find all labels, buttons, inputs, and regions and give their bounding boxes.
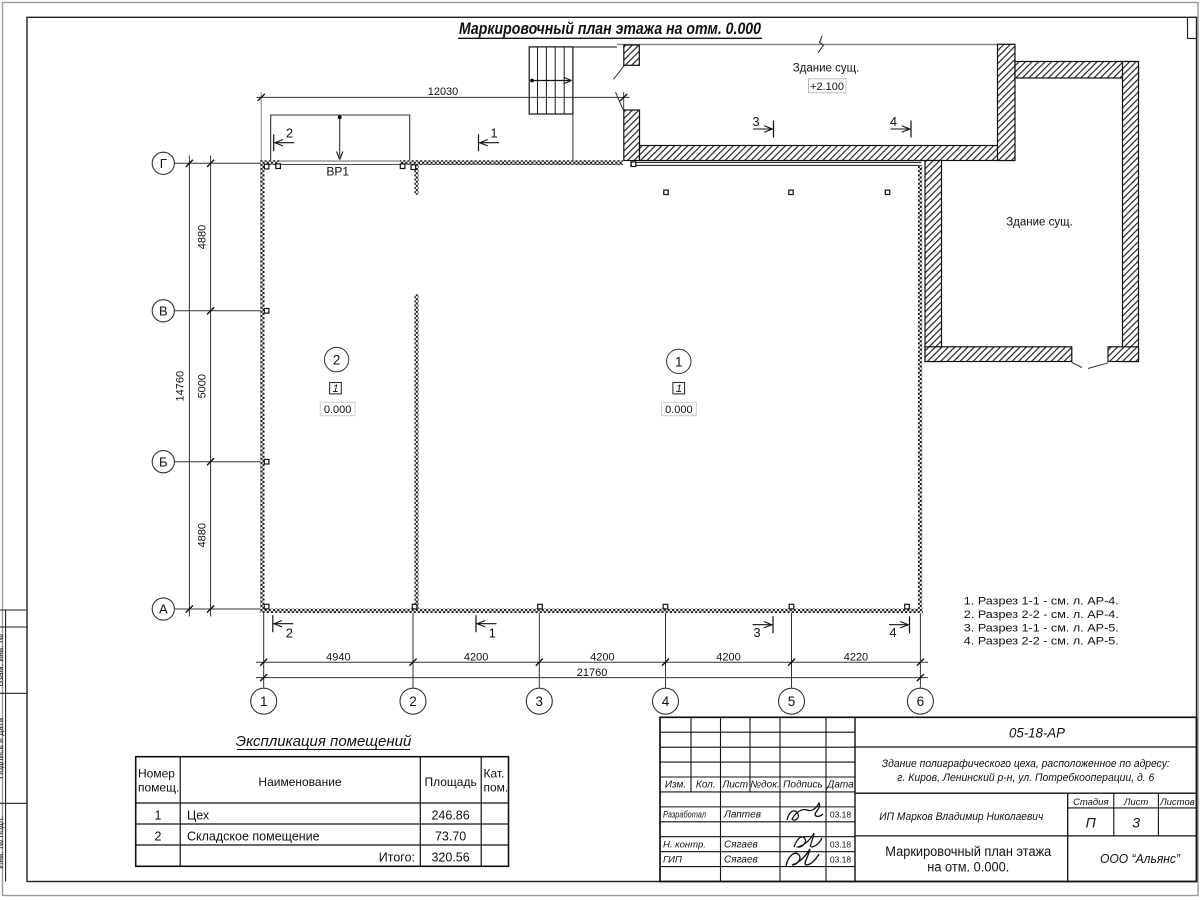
svg-text:Сягаев: Сягаев xyxy=(724,839,758,850)
svg-text:14760: 14760 xyxy=(174,371,186,402)
svg-text:Кат.: Кат. xyxy=(484,767,505,781)
svg-text:Площадь: Площадь xyxy=(424,775,476,789)
svg-text:помещ.: помещ. xyxy=(138,781,179,795)
svg-text:05-18-АР: 05-18-АР xyxy=(1009,725,1066,741)
svg-text:В: В xyxy=(159,303,168,318)
svg-text:4200: 4200 xyxy=(590,652,614,664)
svg-text:Дата: Дата xyxy=(826,780,854,791)
svg-text:4: 4 xyxy=(889,625,896,640)
svg-text:пом.: пом. xyxy=(484,781,509,795)
svg-text:Подпись: Подпись xyxy=(783,780,823,791)
svg-text:Инв. № подл.: Инв. № подл. xyxy=(0,816,5,869)
svg-text:0.000: 0.000 xyxy=(324,404,352,416)
svg-text:1: 1 xyxy=(490,126,497,141)
svg-text:Цех: Цех xyxy=(187,808,210,822)
svg-text:246.86: 246.86 xyxy=(431,808,469,822)
svg-text:4. Разрез 2-2 - см. л. АР-5.: 4. Разрез 2-2 - см. л. АР-5. xyxy=(964,636,1119,648)
svg-text:320.56: 320.56 xyxy=(431,850,469,864)
svg-text:2: 2 xyxy=(409,694,417,709)
svg-text:4200: 4200 xyxy=(716,652,740,664)
svg-text:4880: 4880 xyxy=(197,523,209,547)
svg-text:2: 2 xyxy=(286,625,293,640)
svg-text:ГИП: ГИП xyxy=(663,854,682,865)
svg-text:5: 5 xyxy=(788,694,796,709)
svg-text:4880: 4880 xyxy=(197,225,209,249)
svg-text:Разработал: Разработал xyxy=(663,810,706,821)
svg-text:Здание полиграфического цеха,: Здание полиграфического цеха, расположен… xyxy=(882,758,1170,770)
svg-text:Изм.: Изм. xyxy=(665,780,686,791)
svg-text:3: 3 xyxy=(753,625,760,640)
svg-text:Наименование: Наименование xyxy=(258,775,342,789)
svg-text:+2.100: +2.100 xyxy=(810,81,844,93)
svg-text:Маркировочный план этажа на от: Маркировочный план этажа на отм. 0.000 xyxy=(459,20,762,38)
svg-text:03.18: 03.18 xyxy=(830,854,852,864)
svg-text:4: 4 xyxy=(662,694,670,709)
svg-text:21760: 21760 xyxy=(577,667,608,679)
svg-text:0.000: 0.000 xyxy=(665,404,693,416)
svg-text:2: 2 xyxy=(286,126,293,141)
svg-text:2: 2 xyxy=(155,829,162,843)
svg-text:4: 4 xyxy=(890,114,897,129)
svg-text:03.18: 03.18 xyxy=(830,839,852,849)
svg-text:1: 1 xyxy=(676,383,682,395)
svg-text:1: 1 xyxy=(260,694,268,709)
svg-text:П: П xyxy=(1086,815,1097,831)
svg-text:5000: 5000 xyxy=(197,374,209,398)
svg-text:6: 6 xyxy=(917,694,925,709)
svg-text:г. Киров, Ленинский р-н, ул.: г. Киров, Ленинский р-н, ул. Потребкоопе… xyxy=(897,772,1155,784)
svg-text:12030: 12030 xyxy=(428,86,459,98)
svg-text:Здание сущ.: Здание сущ. xyxy=(793,63,860,75)
svg-text:4200: 4200 xyxy=(464,652,488,664)
svg-text:Лист: Лист xyxy=(721,780,748,791)
svg-text:Лист: Лист xyxy=(1123,797,1149,808)
svg-text:Стадия: Стадия xyxy=(1073,797,1109,808)
svg-text:Итого:: Итого: xyxy=(379,850,415,864)
svg-text:2. Разрез 2-2 - см. л. АР-4.: 2. Разрез 2-2 - см. л. АР-4. xyxy=(964,609,1119,621)
svg-text:Складское помещение: Складское помещение xyxy=(187,829,320,843)
svg-text:3: 3 xyxy=(536,694,544,709)
svg-text:1. Разрез 1-1 - см. л. АР-4.: 1. Разрез 1-1 - см. л. АР-4. xyxy=(964,596,1119,608)
svg-text:1: 1 xyxy=(333,383,339,395)
svg-text:на отм. 0.000.: на отм. 0.000. xyxy=(927,860,1009,875)
svg-text:3: 3 xyxy=(1132,815,1140,831)
svg-text:А: А xyxy=(159,602,168,617)
svg-text:Н. контр.: Н. контр. xyxy=(663,839,706,850)
svg-text:2: 2 xyxy=(333,353,341,368)
svg-text:Кол.: Кол. xyxy=(696,780,716,791)
svg-text:ООО “Альянс”: ООО “Альянс” xyxy=(1100,851,1181,866)
svg-text:Подпись и дата: Подпись и дата xyxy=(0,717,5,778)
svg-text:Номер: Номер xyxy=(138,767,175,781)
svg-text:№док.: №док. xyxy=(750,780,779,791)
svg-text:Листов: Листов xyxy=(1159,797,1195,808)
svg-text:4220: 4220 xyxy=(844,652,868,664)
svg-text:73.70: 73.70 xyxy=(435,829,466,843)
svg-text:Экспликация помещений: Экспликация помещений xyxy=(236,733,412,750)
svg-text:Лаптев: Лаптев xyxy=(723,810,761,821)
svg-text:Здание сущ.: Здание сущ. xyxy=(1006,217,1073,229)
svg-text:Б: Б xyxy=(159,454,168,469)
svg-text:1: 1 xyxy=(155,808,162,822)
svg-text:Г: Г xyxy=(160,156,167,171)
svg-text:ИП Марков Владимир Николаевич: ИП Марков Владимир Николаевич xyxy=(879,811,1043,823)
svg-text:1: 1 xyxy=(489,625,496,640)
svg-text:ВР1: ВР1 xyxy=(326,165,349,179)
svg-text:4940: 4940 xyxy=(326,652,350,664)
svg-text:1: 1 xyxy=(675,354,683,369)
svg-text:3. Разрез 1-1 - см. л. АР-5.: 3. Разрез 1-1 - см. л. АР-5. xyxy=(964,622,1119,634)
svg-text:03.18: 03.18 xyxy=(830,810,852,820)
svg-text:Сягаев: Сягаев xyxy=(724,854,758,865)
svg-text:Взам. инв. №: Взам. инв. № xyxy=(0,634,5,687)
svg-text:Маркировочный план этажа: Маркировочный план этажа xyxy=(885,844,1051,859)
svg-text:3: 3 xyxy=(752,114,759,129)
